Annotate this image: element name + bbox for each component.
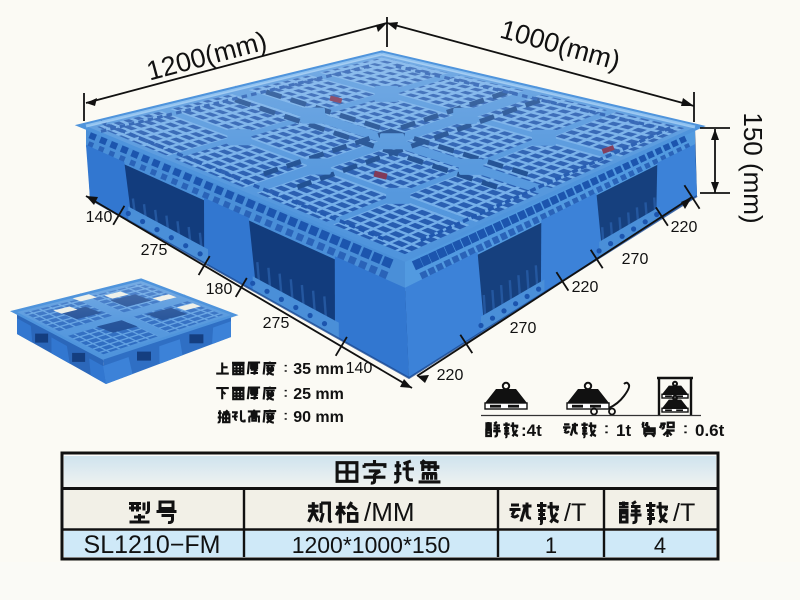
svg-text:220: 220 <box>572 279 599 296</box>
svg-text:4: 4 <box>654 533 666 558</box>
svg-text:/T: /T <box>564 499 586 527</box>
svg-text:150 (mm): 150 (mm) <box>738 112 768 223</box>
svg-text:270: 270 <box>510 320 537 337</box>
svg-text::4t: :4t <box>521 421 542 440</box>
svg-text:275: 275 <box>263 315 290 332</box>
svg-text:/T: /T <box>673 499 695 527</box>
svg-text:25 mm: 25 mm <box>293 386 344 403</box>
svg-text:1200*1000*150: 1200*1000*150 <box>292 532 451 558</box>
svg-text:270: 270 <box>622 251 649 268</box>
svg-text:1t: 1t <box>616 421 631 440</box>
svg-text:1: 1 <box>545 533 557 558</box>
svg-text:35 mm: 35 mm <box>293 361 344 378</box>
svg-text:140: 140 <box>86 209 113 226</box>
svg-text:140: 140 <box>346 360 373 377</box>
svg-text:90 mm: 90 mm <box>293 409 344 426</box>
svg-text:/MM: /MM <box>364 497 415 527</box>
svg-text:220: 220 <box>437 367 464 384</box>
svg-text:275: 275 <box>141 242 168 259</box>
svg-text:0.6t: 0.6t <box>695 421 725 440</box>
svg-text:SL1210−FM: SL1210−FM <box>84 531 221 559</box>
svg-text:180: 180 <box>206 281 233 298</box>
svg-text:220: 220 <box>671 219 698 236</box>
